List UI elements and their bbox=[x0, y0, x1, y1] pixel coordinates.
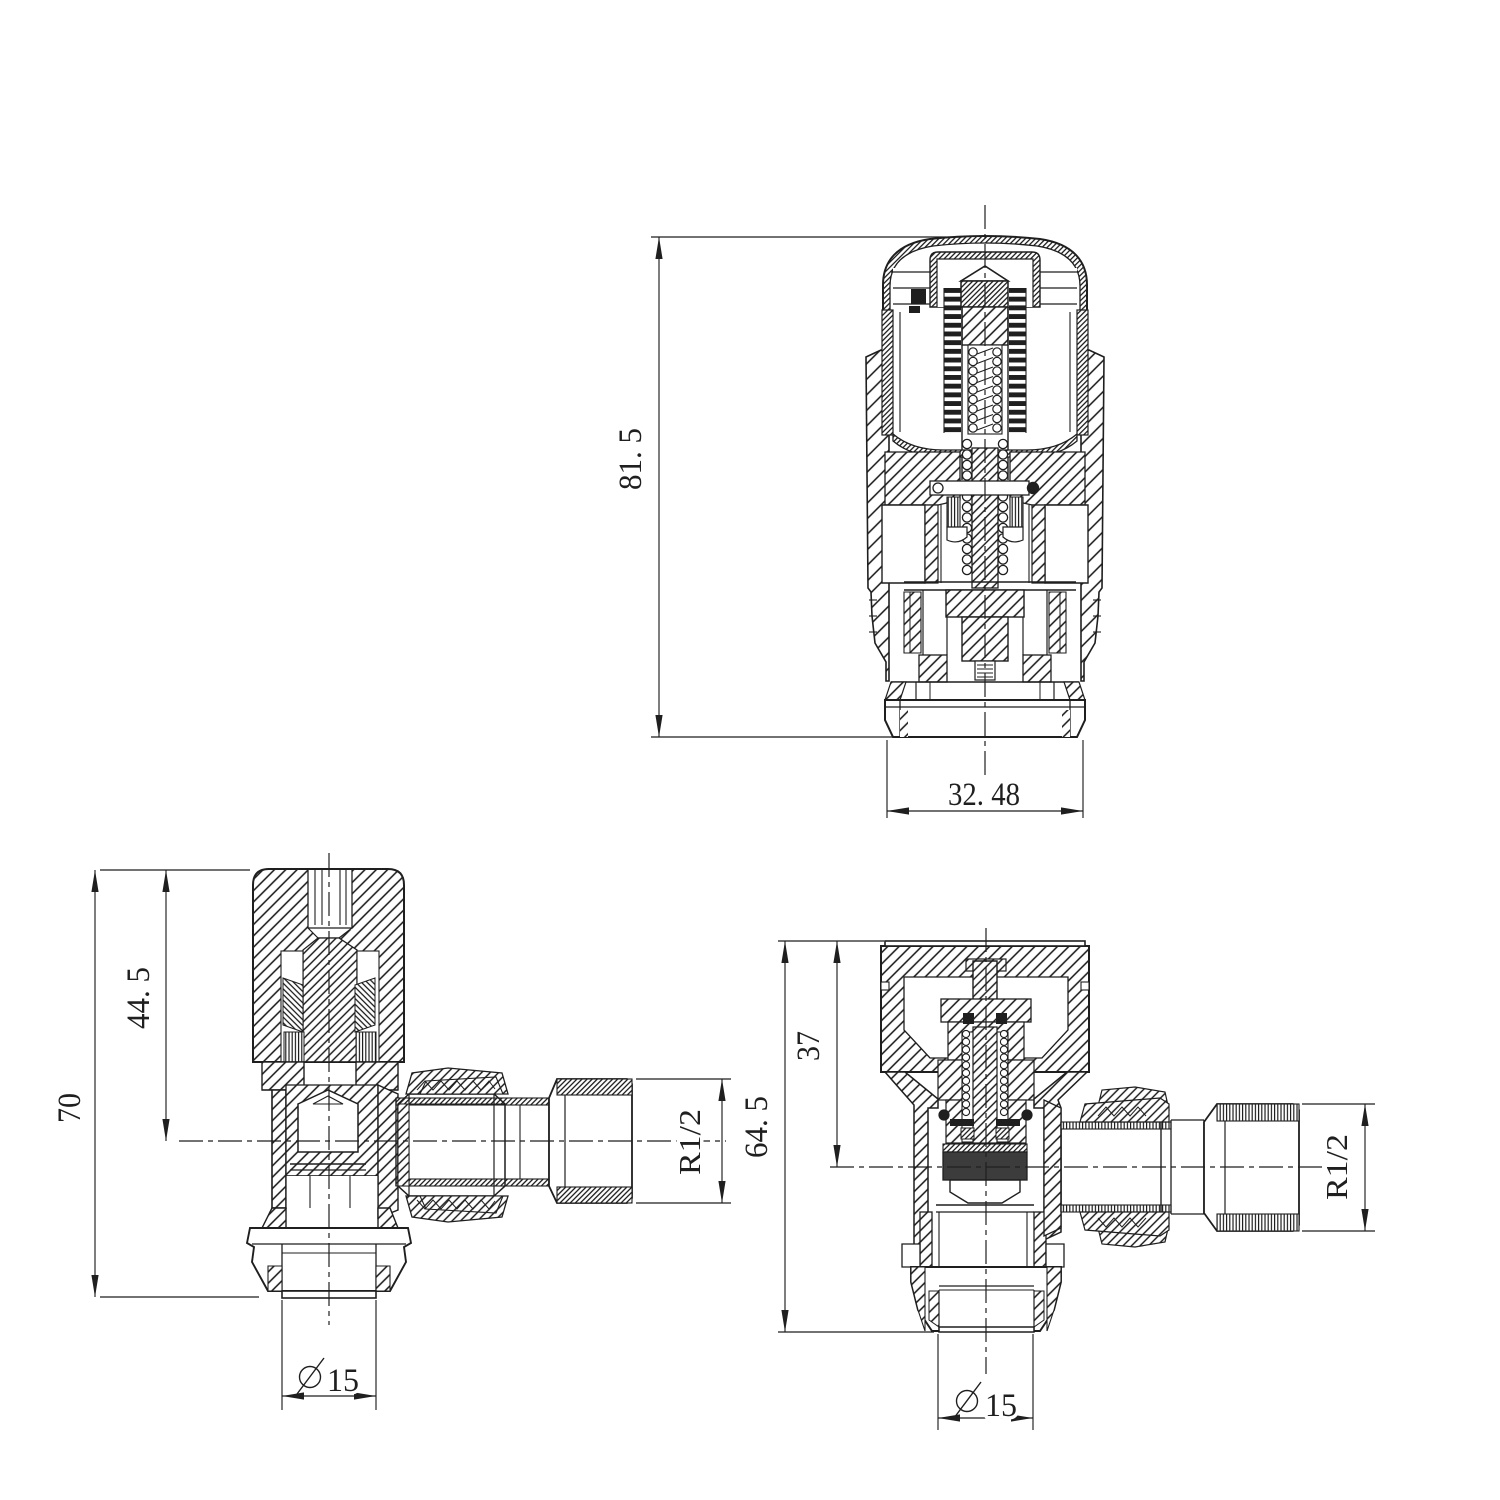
svg-text:15: 15 bbox=[327, 1363, 359, 1399]
svg-text:R1/2: R1/2 bbox=[1319, 1134, 1354, 1200]
svg-text:64. 5: 64. 5 bbox=[739, 1096, 775, 1158]
svg-text:44. 5: 44. 5 bbox=[121, 967, 157, 1029]
svg-text:R1/2: R1/2 bbox=[672, 1109, 707, 1175]
svg-text:32. 48: 32. 48 bbox=[948, 777, 1020, 813]
svg-text:70: 70 bbox=[52, 1093, 88, 1123]
svg-text:81. 5: 81. 5 bbox=[613, 428, 649, 490]
svg-text:15: 15 bbox=[985, 1388, 1017, 1424]
svg-text:37: 37 bbox=[791, 1031, 827, 1061]
